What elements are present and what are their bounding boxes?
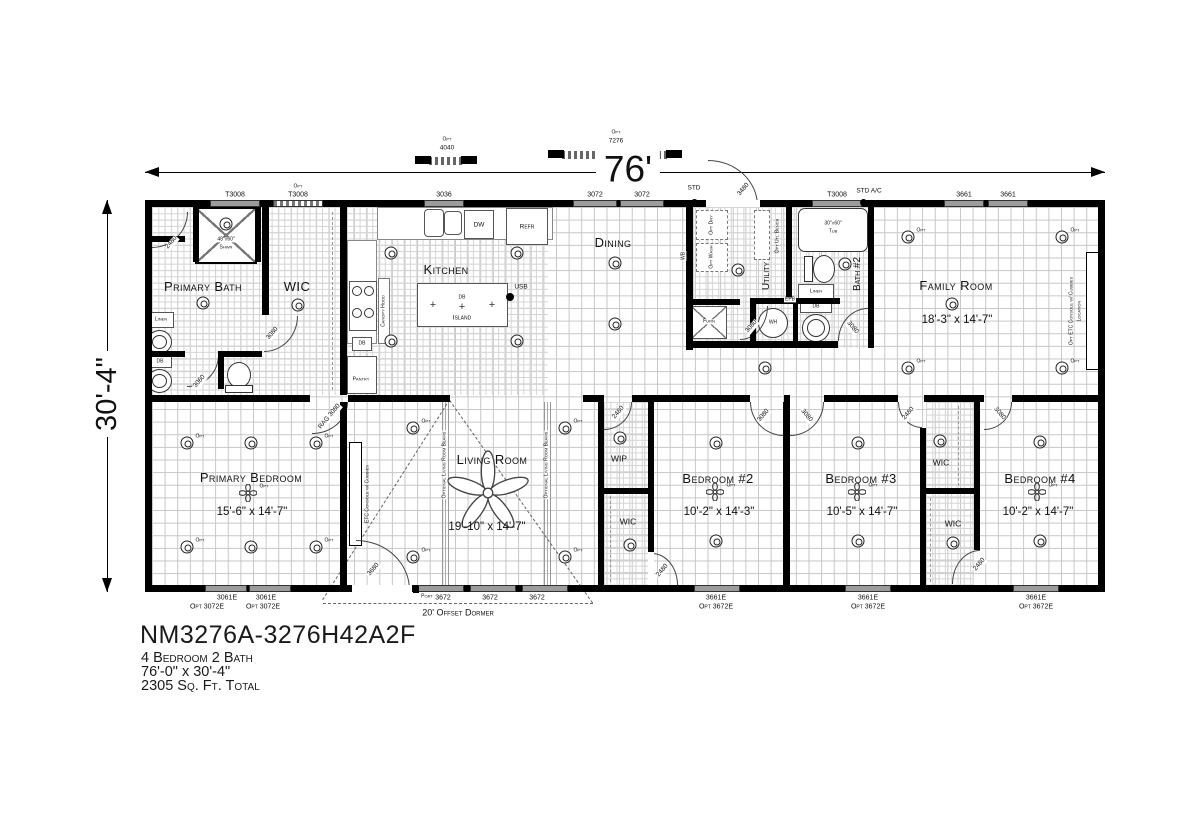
room-dims: 15'-6" x 14'-7" (217, 506, 288, 518)
wall (974, 494, 980, 550)
room-name: Bath #2 (853, 257, 864, 291)
room-name: WIP (611, 455, 627, 464)
rear-door-opening (706, 200, 760, 207)
std-ac-marker-icon (860, 199, 867, 206)
sink-icon (802, 314, 830, 342)
fixture-icon: + (489, 299, 495, 311)
window (470, 585, 516, 592)
ceiling-light-icon (245, 541, 258, 554)
wall (145, 200, 152, 592)
shower-size-label: 48"x60" (216, 237, 235, 242)
ceiling-light-icon (310, 437, 323, 450)
ceiling-light-icon (181, 541, 194, 554)
ceiling-light-icon (946, 298, 959, 311)
window-opt-label: Opt (293, 184, 302, 189)
dishwasher-label: DW (474, 223, 485, 230)
window-label: Opt 3072E (190, 603, 224, 610)
fixture-icon: + (459, 301, 465, 313)
window-label: 3661E (706, 594, 726, 601)
window-label: 3061E (217, 594, 237, 601)
window-label: Opt 3072E (246, 603, 280, 610)
window-optional (273, 200, 323, 207)
console-label: ETC Console w/ Cubbies (365, 465, 370, 523)
opt-tag: Opt (916, 228, 925, 233)
wall (824, 395, 898, 402)
ceiling-light-icon (511, 335, 524, 348)
opt-4040-size: 4040 (440, 146, 454, 153)
closet-rod (332, 212, 333, 390)
ceiling-light-icon (1056, 231, 1069, 244)
tub-label: Tub (829, 229, 838, 234)
opt-tag: Opt (324, 434, 333, 439)
arrow-down-icon (102, 578, 112, 592)
ceiling-fan-icon (239, 484, 257, 502)
arrow-up-icon (102, 200, 112, 214)
room-name: WIC (945, 520, 962, 529)
ceiling-light-icon (710, 535, 723, 548)
island-label: Island (453, 316, 471, 323)
ceiling-light-icon (614, 432, 627, 445)
room-name: WIC (620, 518, 637, 527)
window-label: Opt 3672E (1019, 603, 1053, 610)
toilet-icon (804, 256, 813, 282)
arrow-left-icon (145, 167, 159, 177)
opt-tag: Opt (195, 538, 204, 543)
window (424, 200, 464, 207)
opt-tag: Opt (916, 359, 925, 364)
wall (583, 395, 604, 402)
wall (1012, 395, 1098, 402)
room-name: Bedroom #4 (1004, 472, 1075, 486)
opt-tag: Opt (421, 419, 430, 424)
window (418, 585, 464, 592)
epb-label: EPB (784, 297, 796, 302)
window-label: 3061E (256, 594, 276, 601)
closet-rod (958, 406, 959, 486)
db-label: DB (813, 304, 820, 309)
furnace-label: Furn (702, 319, 716, 324)
opt-4040-label: Opt (442, 137, 451, 142)
room-dims: 19'-10" x 14'-7" (448, 521, 525, 533)
ceiling-light-icon (197, 297, 210, 310)
opt-tag: Opt (726, 483, 735, 488)
window (573, 200, 617, 207)
opt-7276-size: 7276 (609, 139, 623, 146)
room-name: Bedroom #2 (682, 472, 753, 486)
port-label: Port (421, 594, 433, 599)
closet-rod (930, 498, 931, 582)
window-label: 3072 (634, 191, 650, 198)
db-label: DB (157, 359, 164, 364)
water-heater-label: WH (769, 320, 777, 325)
wall (218, 357, 224, 389)
toilet-icon (813, 255, 835, 283)
wall (218, 351, 262, 357)
ceiling-light-icon (1034, 535, 1047, 548)
ceiling-light-icon (852, 535, 865, 548)
window-label: Opt 3672E (699, 603, 733, 610)
window (249, 585, 291, 592)
wall (784, 395, 790, 402)
pantry (347, 356, 377, 394)
ceiling-light-icon (732, 264, 745, 277)
ceiling-light-icon (947, 537, 960, 550)
wall (920, 488, 980, 494)
opt-tag: Opt (868, 483, 877, 488)
window (812, 200, 862, 207)
usb-label: USB (514, 285, 527, 292)
dormer-label: 20' Offset Dormer (422, 608, 494, 617)
ceiling-light-icon (609, 318, 622, 331)
ceiling-light-icon (385, 247, 398, 260)
burner-icon (364, 286, 374, 296)
wall (783, 402, 790, 585)
room-name: Dining (595, 236, 632, 250)
window (1013, 585, 1059, 592)
beam-label: Optional Living Room Beams (544, 431, 549, 500)
ceiling-light-icon (385, 335, 398, 348)
room-name: Utility (762, 262, 773, 290)
window (988, 200, 1028, 207)
wall (255, 207, 261, 262)
ceiling-light-icon (407, 551, 420, 564)
window-label: T3008 (827, 191, 847, 198)
opt-tag: Opt (195, 434, 204, 439)
wall (686, 341, 740, 348)
db-label: DB (359, 341, 366, 346)
floor-plan-canvas: 76' 30'-4" Opt 4040 Opt 7276 (0, 0, 1200, 818)
wall (152, 395, 310, 402)
kitchen-sink (444, 211, 462, 235)
pantry-label: Pantry (353, 377, 370, 382)
etc-console (349, 442, 362, 546)
width-dimension: 76' (596, 151, 660, 190)
room-name: WIC (284, 280, 310, 294)
entry-door-opening (352, 585, 412, 592)
room-name: WIC (933, 459, 950, 468)
square-footage: 2305 Sq. Ft. Total (141, 678, 260, 694)
dormer-line (323, 603, 593, 604)
wall (262, 207, 269, 315)
window-label: 3072 (587, 191, 603, 198)
window (620, 200, 664, 207)
window (944, 200, 984, 207)
linen-label: Linen (810, 289, 822, 294)
wall (152, 351, 185, 357)
linen-label: Linen (155, 317, 167, 322)
ceiling-light-icon (245, 437, 258, 450)
wall (974, 402, 980, 494)
wall (786, 207, 792, 298)
porch-light-icon (413, 586, 419, 593)
ceiling-light-icon (559, 551, 572, 564)
window-label: Opt 3672E (851, 603, 885, 610)
opt-tag: Opt (1048, 483, 1057, 488)
wall (756, 298, 840, 304)
window-label: T3008 (225, 191, 245, 198)
ceiling-light-icon (559, 422, 572, 435)
window-label: 3672 (529, 594, 545, 601)
opt-tag: Opt (573, 419, 582, 424)
wall (924, 395, 984, 402)
window (522, 585, 568, 592)
ceiling-light-icon (609, 257, 622, 270)
ceiling-light-icon (934, 435, 947, 448)
model-number: NM3276A-3276H42A2F (140, 621, 416, 650)
wall (598, 488, 654, 494)
wall (793, 304, 798, 348)
beam-label: Optional Living Room Beams (442, 431, 447, 500)
opt-tag: Opt (259, 484, 268, 489)
burner-icon (352, 308, 362, 318)
room-dims: 18'-3" x 14'-7" (922, 314, 993, 326)
room-dims: 10'-5" x 14'-7" (827, 506, 898, 518)
wall (632, 395, 750, 402)
wall (1098, 200, 1105, 592)
ceiling-light-icon (902, 231, 915, 244)
kitchen-sink (424, 209, 444, 237)
usb-outlet-icon (506, 293, 514, 301)
ceiling-light-icon (1056, 362, 1069, 375)
db-label: DB (459, 295, 466, 300)
canopy-hood-label: Canopy Hood (381, 295, 386, 327)
opt-tag: Opt (573, 548, 582, 553)
opt-7276-label: Opt (611, 130, 620, 135)
console-label: Opt ETC Console w/ Cubbies (1069, 277, 1074, 345)
door-opening (648, 552, 654, 584)
ceiling-light-icon (624, 539, 637, 552)
wall (686, 207, 693, 350)
opt-tag: Opt (324, 538, 333, 543)
refrigerator-label: Refr (520, 225, 535, 232)
window-label: 3661E (1026, 594, 1046, 601)
burner-icon (352, 286, 362, 296)
opt-utility-bench (754, 210, 770, 260)
ceiling-light-icon (292, 299, 305, 312)
room-name: Family Room (919, 279, 992, 293)
bench-label: Opt Utl Bench (775, 219, 780, 254)
ceiling-light-icon (181, 437, 194, 450)
ceiling-light-icon (511, 247, 524, 260)
opt-4040-window (429, 157, 463, 165)
std-ac-label: STD A/C (856, 189, 881, 196)
window (210, 200, 260, 207)
room-dims: 10'-2" x 14'-3" (684, 506, 755, 518)
ceiling-light-icon (220, 218, 233, 231)
room-name: Primary Bedroom (200, 471, 302, 485)
window-label: 3661E (858, 594, 878, 601)
window-label: T3008 (288, 191, 308, 198)
toilet-icon (225, 385, 253, 393)
room-dims: 10'-2" x 14'-7" (1003, 506, 1074, 518)
room-name: Living Room (457, 453, 528, 467)
ceiling-light-icon (1034, 436, 1047, 449)
window-label: 3672 (482, 594, 498, 601)
wall (348, 395, 450, 402)
wall (920, 428, 926, 585)
ceiling-light-icon (902, 362, 915, 375)
wb-label: WB (681, 251, 686, 261)
wall (340, 207, 347, 395)
room-name: Kitchen (424, 263, 469, 277)
shower-label: Shwr (219, 245, 234, 250)
ceiling-light-icon (759, 362, 772, 375)
opt-tag: Opt (421, 548, 430, 553)
ceiling-light-icon (407, 422, 420, 435)
ceiling-light-icon (839, 258, 852, 271)
ceiling-light-icon (310, 541, 323, 554)
std-door-label: STD (688, 186, 701, 193)
console-label: Location (1077, 301, 1082, 322)
window-label: 3672 (435, 594, 451, 601)
window-label: 3661 (1000, 191, 1016, 198)
burner-icon (364, 308, 374, 318)
window (205, 585, 247, 592)
closet-rod (610, 496, 611, 582)
wall (868, 207, 874, 348)
ceiling-light-icon (852, 437, 865, 450)
wall (648, 402, 654, 552)
window (845, 585, 891, 592)
wall (340, 402, 347, 585)
fixture-icon: + (430, 299, 436, 311)
opt-tag: Opt (1070, 228, 1079, 233)
window-label: 3036 (436, 191, 452, 198)
opt-washer-label: Opt Wash (709, 245, 714, 268)
room-name: Bedroom #3 (825, 472, 896, 486)
opt-dryer-label: Opt Dry (709, 215, 714, 235)
window-label: 3661 (956, 191, 972, 198)
ceiling-light-icon (710, 437, 723, 450)
arrow-right-icon (1091, 167, 1105, 177)
tub-size-label: 30"x60" (824, 221, 841, 226)
window (694, 585, 740, 592)
opt-tag: Opt (1070, 359, 1079, 364)
std-marker-icon (691, 199, 698, 206)
height-dimension: 30'-4" (92, 351, 122, 437)
wall (193, 207, 199, 262)
wall (686, 299, 740, 305)
room-name: Primary Bath (164, 280, 242, 294)
